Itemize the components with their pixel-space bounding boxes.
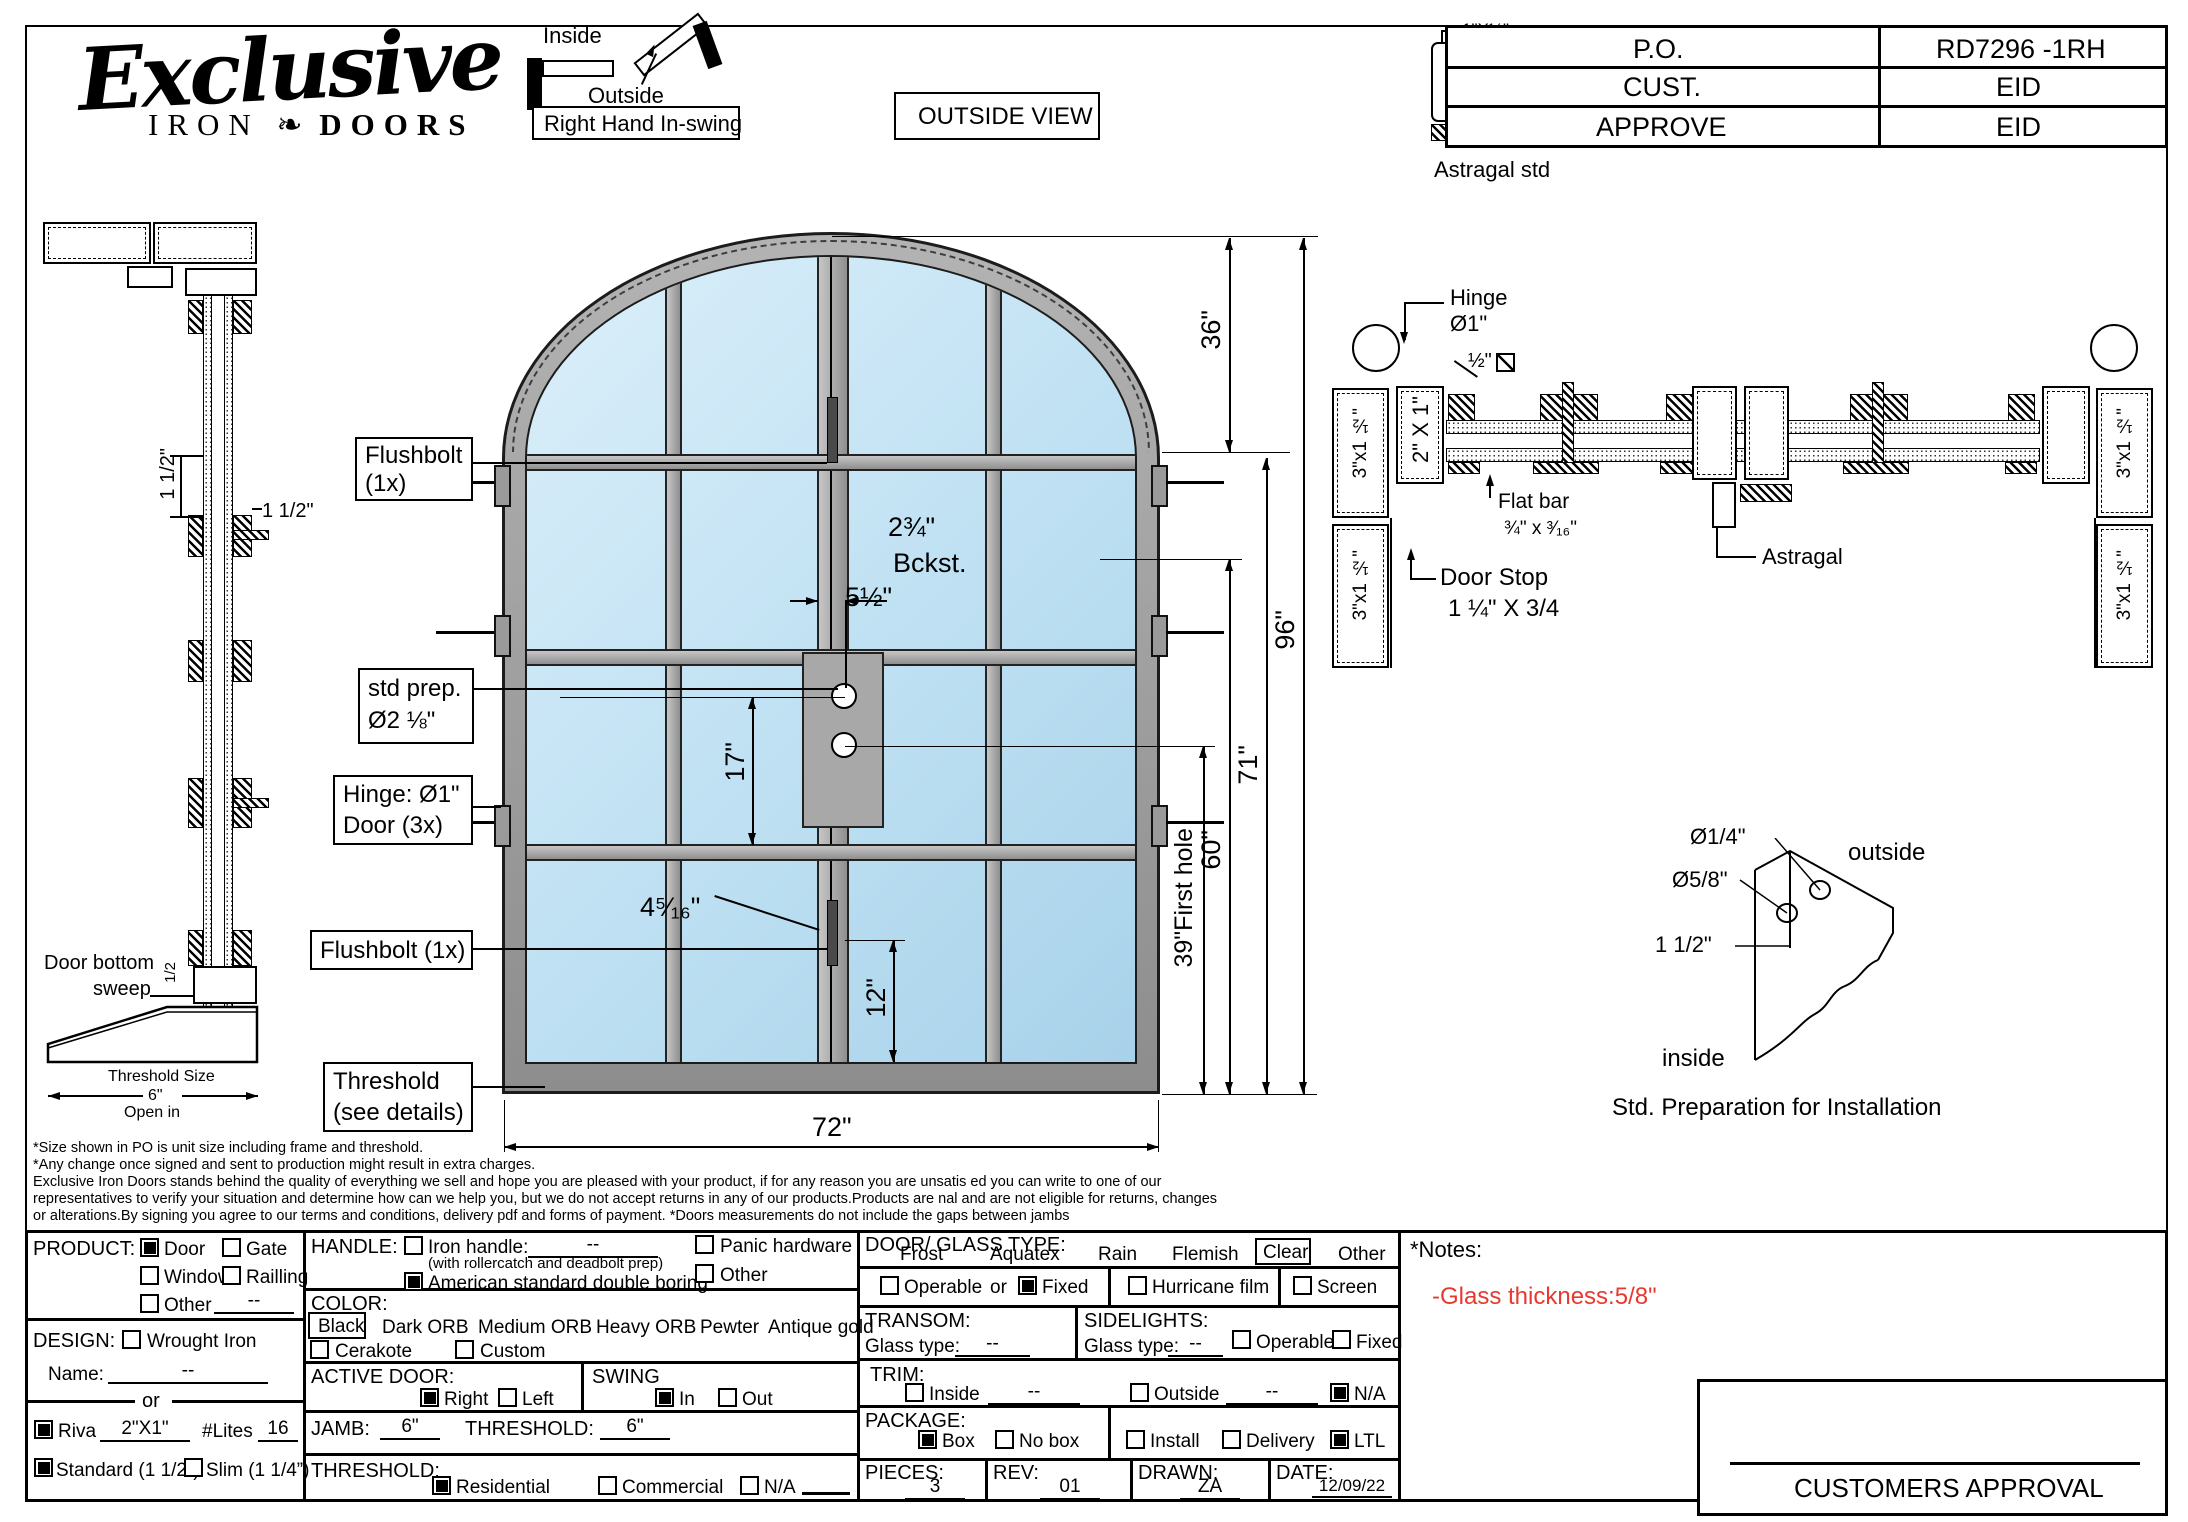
dim-72-line bbox=[504, 1146, 1159, 1148]
trim-outside-checkbox[interactable] bbox=[1130, 1383, 1149, 1402]
sidelights-fixed-label: Fixed bbox=[1356, 1332, 1402, 1353]
cust-label: CUST. bbox=[1623, 72, 1701, 102]
design-standard-checkbox[interactable] bbox=[34, 1458, 53, 1477]
color-custom-checkbox[interactable] bbox=[455, 1340, 474, 1359]
dim-firsthole-arrow-b bbox=[1199, 1082, 1207, 1094]
dim-12-arrow-top bbox=[889, 940, 897, 952]
form-c3-vline-1 bbox=[1108, 1266, 1111, 1305]
install-offset: 1 1/2" bbox=[1655, 933, 1712, 958]
sweep-half-dim: 1/2 bbox=[163, 962, 178, 983]
screw-right-1 bbox=[1166, 481, 1224, 484]
color-custom-label: Custom bbox=[480, 1341, 545, 1362]
slab-hatch-b1 bbox=[1448, 462, 1480, 474]
threshold-na-label: N/A bbox=[764, 1477, 796, 1498]
slab-hatch-t5 bbox=[2008, 394, 2035, 421]
dim-96-line bbox=[1303, 238, 1305, 1094]
jamb-strip-left-rail bbox=[203, 295, 212, 1045]
jamb-hatch-5L bbox=[188, 930, 203, 966]
logo-sub: IRON ❧ DOORS bbox=[148, 108, 475, 143]
ext-hinge-mid bbox=[1100, 559, 1242, 560]
swing-label: SWING bbox=[592, 1366, 660, 1388]
form-c3-vline-7 bbox=[1268, 1458, 1271, 1502]
screw-right-3 bbox=[1166, 821, 1224, 824]
handle-iron-checkbox[interactable] bbox=[404, 1236, 423, 1255]
dim-72-arrow-r bbox=[1147, 1143, 1159, 1151]
package-ltl-checkbox[interactable] bbox=[1330, 1430, 1349, 1449]
dim-72: 72" bbox=[806, 1112, 858, 1142]
hinge-right-1 bbox=[1151, 465, 1168, 507]
jamb-strip-right-rail bbox=[224, 295, 233, 1045]
dim-backset-ext bbox=[845, 600, 847, 688]
form-vline-3 bbox=[1398, 1230, 1401, 1502]
sidelights-fixed-checkbox[interactable] bbox=[1332, 1330, 1351, 1349]
disclaimer-line-5: or alterations.By signing you agree to o… bbox=[33, 1208, 1070, 1224]
dim-71-line bbox=[1266, 458, 1268, 1094]
active-right-label: Right bbox=[444, 1389, 488, 1410]
glass-frost-label[interactable]: Frost bbox=[900, 1244, 943, 1265]
cust-value: EID bbox=[1996, 72, 2041, 102]
sweep-label-1: Door bottom bbox=[44, 952, 154, 974]
astragal-plan-label: Astragal bbox=[1762, 545, 1843, 570]
glass-screen-checkbox[interactable] bbox=[1293, 1276, 1312, 1295]
glass-screen-label: Screen bbox=[1317, 1277, 1377, 1298]
trim-inside-value[interactable]: -- bbox=[988, 1381, 1080, 1405]
package-box-checkbox[interactable] bbox=[918, 1430, 937, 1449]
swing-inside-label: Inside bbox=[543, 24, 602, 49]
sidelights-operable-checkbox[interactable] bbox=[1232, 1330, 1251, 1349]
form-or-line-l bbox=[25, 1400, 135, 1403]
head-wall-line-left bbox=[1390, 518, 1392, 668]
package-delivery-label: Delivery bbox=[1246, 1431, 1315, 1452]
date-value[interactable]: 12/09/22 bbox=[1312, 1476, 1392, 1498]
product-window-checkbox[interactable] bbox=[140, 1266, 159, 1285]
leader-hinge bbox=[473, 806, 501, 808]
jamb-hatch-2L bbox=[188, 515, 203, 557]
jamb-hatch-4L bbox=[188, 778, 203, 828]
threshold-open-in: Open in bbox=[124, 1104, 180, 1122]
glass-fixed-checkbox[interactable] bbox=[1018, 1276, 1037, 1295]
disclaimer-line-1: *Size shown in PO is unit size including… bbox=[33, 1140, 423, 1156]
callout-hinge: Hinge: Ø1" Door (3x) bbox=[333, 775, 473, 845]
hinge-right-3 bbox=[1151, 805, 1168, 847]
dim-72-arrow-l bbox=[504, 1143, 516, 1151]
threshold-dim-arrow-r bbox=[246, 1092, 258, 1100]
title-block-row1-divider bbox=[1448, 66, 2165, 69]
drawn-value[interactable]: ZA bbox=[1180, 1476, 1240, 1500]
dim-36-arrow-b bbox=[1225, 440, 1233, 452]
glass-other-label[interactable]: Other bbox=[1338, 1244, 1386, 1265]
flatbar-leader bbox=[1489, 480, 1491, 498]
product-other-label: Other bbox=[164, 1295, 212, 1316]
color-black-label: Black bbox=[318, 1316, 364, 1337]
head-jamb-size-bottom: 3"x1 ½" bbox=[1351, 550, 1370, 620]
jamb-hatch-1R bbox=[233, 300, 252, 334]
head-hinge-leader-h bbox=[1404, 302, 1444, 304]
form-c3-hline-4 bbox=[857, 1405, 1398, 1408]
dim-12-tick bbox=[845, 940, 905, 941]
screw-left-2 bbox=[436, 631, 494, 634]
form-vline-2 bbox=[857, 1230, 860, 1502]
threshold-size-value: 6" bbox=[148, 1087, 163, 1105]
slab-muntin-2 bbox=[1872, 382, 1884, 466]
head-tube-right-dash bbox=[2047, 391, 2085, 479]
product-door-checkbox[interactable] bbox=[140, 1238, 159, 1257]
rev-label: REV: bbox=[993, 1462, 1039, 1484]
swing-in-checkbox[interactable] bbox=[655, 1388, 674, 1407]
transom-glasstype-label: Glass type: bbox=[865, 1336, 960, 1357]
head-jamb-box-top: 3"x1 ½" bbox=[1332, 388, 1389, 518]
design-riva-checkbox[interactable] bbox=[34, 1420, 53, 1439]
swing-in-label: In bbox=[679, 1389, 695, 1410]
meeting-doorstop bbox=[1712, 482, 1736, 528]
install-caption: Std. Preparation for Installation bbox=[1612, 1095, 1942, 1122]
leader-flushbolt-bottom bbox=[473, 948, 827, 950]
ext-bottom bbox=[1162, 1094, 1317, 1095]
form-c2-vline-swing bbox=[581, 1361, 584, 1410]
color-darkorb-label[interactable]: Dark ORB bbox=[382, 1317, 469, 1338]
jamb-dim-tick1 bbox=[170, 455, 204, 457]
callout-hinge-l2: Door (3x) bbox=[343, 813, 443, 840]
color-black-box[interactable]: Black bbox=[308, 1312, 366, 1339]
swing-type-box: Right Hand In-swing bbox=[532, 106, 740, 140]
jamb-head-box-1-dash bbox=[48, 227, 146, 259]
product-gate-checkbox[interactable] bbox=[222, 1238, 241, 1257]
threshold-residential-label: Residential bbox=[456, 1477, 550, 1498]
rev-value[interactable]: 01 bbox=[1040, 1476, 1100, 1500]
install-detail-sketch bbox=[1735, 838, 1915, 1073]
handle-panic-label: Panic hardware bbox=[720, 1236, 852, 1257]
handle-other-checkbox[interactable] bbox=[695, 1264, 714, 1283]
view-label-box: OUTSIDE VIEW bbox=[894, 92, 1100, 140]
handle-iron-note: (with rollercatch and deadbolt prep) bbox=[428, 1256, 663, 1273]
closed-door-bar bbox=[542, 60, 614, 77]
jamb-hatch-3L bbox=[188, 640, 203, 682]
dim-71-arrow-b bbox=[1262, 1082, 1270, 1094]
threshold-dim-arrow-l bbox=[48, 1092, 60, 1100]
jamb-value[interactable]: 6" bbox=[380, 1416, 440, 1440]
active-left-label: Left bbox=[522, 1389, 554, 1410]
threshold-residential-checkbox[interactable] bbox=[432, 1476, 451, 1495]
jamb-hatch-3R bbox=[233, 640, 252, 682]
design-wrought-label: Wrought Iron bbox=[147, 1331, 256, 1352]
callout-threshold-l1: Threshold bbox=[333, 1069, 440, 1096]
form-c3-vline-5 bbox=[985, 1458, 988, 1502]
glass-clear-box[interactable]: Clear bbox=[1255, 1238, 1311, 1265]
dim-36: 36" bbox=[1198, 310, 1225, 350]
form-c3-vline-3 bbox=[1075, 1305, 1078, 1358]
astragal-caption: Astragal std bbox=[1434, 158, 1550, 183]
glass-or-label: or bbox=[990, 1277, 1007, 1298]
product-railing-label: Railling bbox=[246, 1267, 308, 1288]
jamb-hatch-5R bbox=[233, 930, 252, 966]
signature-line[interactable] bbox=[1730, 1462, 2140, 1465]
product-label: PRODUCT: bbox=[33, 1238, 135, 1260]
color-heavyorb-label[interactable]: Heavy ORB bbox=[596, 1317, 696, 1338]
slab-hatch-t1 bbox=[1448, 394, 1475, 421]
leader-stdprep bbox=[474, 688, 838, 690]
design-lites-label: #Lites bbox=[202, 1421, 253, 1442]
callout-stdprep-l2: Ø2 ⅛" bbox=[368, 708, 435, 735]
head-hinge-label-2: Ø1" bbox=[1450, 312, 1487, 337]
install-outside: outside bbox=[1848, 840, 1925, 867]
head-tube-right bbox=[2042, 386, 2090, 484]
form-c2-hline-4 bbox=[303, 1453, 857, 1456]
dim-firsthole-line bbox=[1203, 746, 1205, 1094]
trim-outside-value[interactable]: -- bbox=[1226, 1381, 1318, 1405]
slab-hatch-b5 bbox=[2005, 462, 2037, 474]
trim-na-checkbox[interactable] bbox=[1330, 1383, 1349, 1402]
head-jamb-box-top-right: 3"x1 ½" bbox=[2096, 388, 2153, 518]
package-box-label: Box bbox=[942, 1431, 975, 1452]
swing-out-label: Out bbox=[742, 1389, 773, 1410]
hinge-left-3 bbox=[494, 805, 511, 847]
active-right-checkbox[interactable] bbox=[420, 1388, 439, 1407]
callout-stdprep: std prep. Ø2 ⅛" bbox=[358, 668, 474, 744]
jamb-hatch-2bar bbox=[233, 530, 269, 540]
swing-outside-label: Outside bbox=[588, 84, 664, 109]
title-block-col-divider bbox=[1878, 28, 1881, 145]
transom-glasstype-value[interactable]: -- bbox=[955, 1333, 1030, 1357]
jamb-head-box-2 bbox=[153, 222, 257, 264]
threshold-label: THRESHOLD: bbox=[311, 1460, 440, 1482]
slab-hatch-b4 bbox=[1843, 462, 1909, 474]
jamb-dim-tick3 bbox=[252, 508, 262, 510]
doorstop-leader-h bbox=[1410, 578, 1436, 580]
flushbolt-rod-bottom bbox=[827, 900, 838, 966]
head-tube-size: 2" X 1" bbox=[1410, 396, 1432, 463]
head-jamb-box-bottom-right: 3"x1 ½" bbox=[2096, 524, 2153, 668]
handle-american-checkbox[interactable] bbox=[404, 1272, 423, 1291]
meeting-astragal-bar bbox=[1740, 484, 1792, 502]
jamb-threshold-value[interactable]: 6" bbox=[600, 1416, 670, 1440]
glass-hurricane-label: Hurricane film bbox=[1152, 1277, 1269, 1298]
transom-label: TRANSOM: bbox=[865, 1310, 971, 1332]
rail-lower bbox=[527, 844, 1135, 861]
color-mediumorb-label[interactable]: Medium ORB bbox=[478, 1317, 592, 1338]
jamb-threshold-label: THRESHOLD: bbox=[465, 1418, 594, 1440]
glass-operable-label: Operable bbox=[904, 1277, 982, 1298]
active-door-label: ACTIVE DOOR: bbox=[311, 1366, 454, 1388]
jamb-head-box-4 bbox=[185, 268, 257, 296]
slab-muntin-1 bbox=[1562, 382, 1574, 466]
head-tube-left: 2" X 1" bbox=[1396, 386, 1444, 484]
callout-flushbolt-bottom-l1: Flushbolt (1x) bbox=[320, 938, 465, 965]
threshold-wedge bbox=[45, 1003, 261, 1065]
doorstop-label-2: 1 ¼" X 3/4 bbox=[1448, 596, 1559, 623]
head-hinge-label-1: Hinge bbox=[1450, 286, 1507, 311]
slab-hatch-t3 bbox=[1666, 394, 1693, 421]
package-nobox-checkbox[interactable] bbox=[995, 1430, 1014, 1449]
threshold-na-checkbox[interactable] bbox=[740, 1476, 759, 1495]
jamb-dim-line bbox=[180, 455, 182, 517]
glass-rain-label[interactable]: Rain bbox=[1098, 1244, 1137, 1265]
head-hinge-arrow bbox=[1400, 332, 1408, 344]
install-inside: inside bbox=[1662, 1046, 1725, 1073]
notes-glass-thickness: -Glass thickness:5/8" bbox=[1432, 1284, 1657, 1311]
head-wall-line-right bbox=[2094, 518, 2096, 668]
threshold-commercial-checkbox[interactable] bbox=[598, 1476, 617, 1495]
approve-label: APPROVE bbox=[1596, 112, 1727, 142]
hinge-left-2 bbox=[494, 615, 511, 657]
form-c3-hline-3 bbox=[857, 1358, 1398, 1361]
callout-stdprep-l1: std prep. bbox=[368, 676, 461, 703]
dim-4-5-16: 4⁵⁄₁₆" bbox=[640, 892, 700, 922]
dim-backset-label: Bckst. bbox=[893, 548, 967, 578]
package-delivery-checkbox[interactable] bbox=[1222, 1430, 1241, 1449]
form-c3-vline-2 bbox=[1278, 1266, 1281, 1305]
swing-type-label: Right Hand In-swing bbox=[544, 112, 742, 137]
deadbolt-hole bbox=[831, 732, 857, 758]
jamb-head-box-3 bbox=[127, 266, 173, 288]
glass-operable-checkbox[interactable] bbox=[880, 1276, 899, 1295]
dim-12: 12" bbox=[863, 978, 890, 1018]
hinge-right-2 bbox=[1151, 615, 1168, 657]
threshold-na-blank bbox=[802, 1492, 850, 1495]
head-jamb-size-bottom-r: 3"x1 ½" bbox=[2115, 550, 2134, 620]
product-other-checkbox[interactable] bbox=[140, 1294, 159, 1313]
meeting-tube-right-dash bbox=[1749, 391, 1784, 475]
doorstop-leader-v bbox=[1410, 554, 1412, 578]
callout-threshold: Threshold (see details) bbox=[323, 1062, 473, 1132]
head-hinge-circle-right bbox=[2090, 324, 2138, 372]
jamb-head-box-1 bbox=[43, 222, 151, 264]
flushbolt-rod-top bbox=[827, 397, 838, 463]
form-or-line-r bbox=[172, 1400, 303, 1403]
product-railing-checkbox[interactable] bbox=[222, 1266, 241, 1285]
logo-iron: IRON bbox=[148, 107, 260, 142]
design-name-label: Name: bbox=[48, 1364, 104, 1385]
glass-aquatex-label[interactable]: Aquatex bbox=[990, 1244, 1060, 1265]
active-left-checkbox[interactable] bbox=[498, 1388, 517, 1407]
package-install-label: Install bbox=[1150, 1431, 1200, 1452]
dim-12-arrow-bot bbox=[889, 1050, 897, 1062]
dim-17-line bbox=[752, 697, 754, 845]
head-half-square-label: ½" bbox=[1468, 350, 1492, 372]
callout-hinge-l1: Hinge: Ø1" bbox=[343, 782, 460, 809]
flatbar-label-2: ¾" x ³⁄₁₆" bbox=[1504, 518, 1577, 539]
door-bottom-block bbox=[193, 966, 257, 1004]
dim-firsthole-arrow-t bbox=[1199, 746, 1207, 758]
sidelights-glasstype-label: Glass type: bbox=[1084, 1336, 1179, 1357]
trim-outside-label: Outside bbox=[1154, 1384, 1219, 1405]
form-c3-vline-4 bbox=[1108, 1405, 1111, 1458]
glass-fixed-label: Fixed bbox=[1042, 1277, 1088, 1298]
dim-firsthole: 39"First hole bbox=[1172, 828, 1197, 968]
design-or-label: or bbox=[142, 1390, 160, 1412]
logo-doors: DOORS bbox=[319, 107, 474, 142]
meeting-tube-left bbox=[1692, 386, 1737, 480]
design-lites-value[interactable]: 16 bbox=[258, 1418, 298, 1442]
ext-hole1 bbox=[560, 697, 845, 698]
callout-flushbolt-top-l2: (1x) bbox=[365, 471, 406, 498]
product-gate-label: Gate bbox=[246, 1239, 287, 1260]
dim-backset: 2¾" bbox=[888, 512, 935, 542]
handle-american-label: American standard double boring bbox=[428, 1273, 708, 1294]
color-antique-label[interactable]: Antique gold bbox=[768, 1317, 874, 1338]
half-square-icon bbox=[1496, 353, 1515, 372]
package-label: PACKAGE: bbox=[865, 1410, 966, 1432]
screw-right-2 bbox=[1166, 631, 1224, 634]
jamb-dim: 1 1/2" bbox=[262, 500, 314, 522]
meeting-tube-right bbox=[1744, 386, 1789, 480]
callout-flushbolt-top: Flushbolt (1x) bbox=[355, 437, 473, 501]
meeting-tube-left-dash bbox=[1697, 391, 1732, 475]
sidelights-glasstype-value[interactable]: -- bbox=[1168, 1333, 1223, 1357]
package-nobox-label: No box bbox=[1019, 1431, 1079, 1452]
drawing-sheet: Exclusive IRON ❧ DOORS Inside Outside Ri… bbox=[0, 0, 2188, 1522]
form-c3-hline-2 bbox=[857, 1305, 1398, 1308]
closed-door-jamb bbox=[527, 58, 542, 110]
glass-clear-label: Clear bbox=[1263, 1242, 1308, 1263]
design-slim-checkbox[interactable] bbox=[184, 1458, 203, 1477]
sweep-label-2: sweep bbox=[93, 978, 151, 1000]
customers-approval-box: CUSTOMERS APPROVAL bbox=[1697, 1379, 2168, 1516]
po-label: P.O. bbox=[1633, 34, 1684, 64]
dim-17-arrow-top bbox=[748, 697, 756, 709]
trim-inside-checkbox[interactable] bbox=[905, 1383, 924, 1402]
form-c3-hline-1 bbox=[857, 1266, 1398, 1269]
install-hole-small: Ø1/4" bbox=[1690, 825, 1746, 850]
flatbar-label-1: Flat bar bbox=[1498, 490, 1569, 514]
ext-springline bbox=[1162, 452, 1290, 453]
glass-hurricane-checkbox[interactable] bbox=[1128, 1276, 1147, 1295]
pieces-value[interactable]: 3 bbox=[905, 1476, 965, 1500]
trim-inside-label: Inside bbox=[929, 1384, 980, 1405]
design-riva-value[interactable]: 2"X1" bbox=[100, 1418, 190, 1442]
astragal-leader-h bbox=[1716, 556, 1756, 558]
form-c1-hline-1 bbox=[25, 1318, 303, 1321]
dim-36-arrow-t bbox=[1225, 238, 1233, 250]
color-pewter-label[interactable]: Pewter bbox=[700, 1317, 759, 1338]
dim-12-line bbox=[893, 940, 895, 1062]
jamb-head-box-2-dash bbox=[158, 227, 252, 259]
design-riva-label: Riva bbox=[58, 1421, 96, 1442]
swing-out-checkbox[interactable] bbox=[718, 1388, 737, 1407]
jamb-label: JAMB: bbox=[311, 1418, 370, 1440]
product-other-value[interactable]: -- bbox=[214, 1290, 294, 1314]
leader-threshold bbox=[473, 1086, 545, 1088]
install-hole-large: Ø5/8" bbox=[1672, 868, 1728, 893]
handle-label: HANDLE: bbox=[311, 1236, 398, 1258]
slab-bottom-skin bbox=[1446, 448, 2040, 462]
astragal-leader-1 bbox=[1441, 30, 1443, 44]
package-ltl-label: LTL bbox=[1354, 1431, 1385, 1452]
package-install-checkbox[interactable] bbox=[1126, 1430, 1145, 1449]
design-wrought-checkbox[interactable] bbox=[122, 1330, 141, 1349]
handle-panic-checkbox[interactable] bbox=[695, 1235, 714, 1254]
callout-flushbolt-bottom: Flushbolt (1x) bbox=[310, 930, 473, 970]
ext-top bbox=[832, 236, 1318, 237]
fleur-ornament-icon: ❧ bbox=[277, 107, 303, 142]
doorstop-label-1: Door Stop bbox=[1440, 565, 1548, 592]
color-cerakote-label: Cerakote bbox=[335, 1341, 412, 1362]
sidelights-operable-label: Operable bbox=[1256, 1332, 1334, 1353]
threshold-dim-line-l bbox=[48, 1095, 143, 1097]
handle-hole bbox=[831, 683, 857, 709]
glass-flemish-label[interactable]: Flemish bbox=[1172, 1244, 1239, 1265]
dim-71: 71" bbox=[1235, 745, 1262, 785]
threshold-commercial-label: Commercial bbox=[622, 1477, 723, 1498]
color-cerakote-checkbox[interactable] bbox=[310, 1340, 329, 1359]
dim-17: 17" bbox=[722, 742, 749, 782]
dim-96-arrow-b bbox=[1299, 1082, 1307, 1094]
design-name-value[interactable]: -- bbox=[108, 1360, 268, 1384]
dim-backset-arrow2 bbox=[806, 597, 818, 605]
design-standard-label: Standard (1 1/2”) bbox=[56, 1460, 200, 1481]
slab-hatch-b3 bbox=[1660, 462, 1694, 474]
disclaimer-line-4: representatives to verify your situation… bbox=[33, 1191, 1217, 1207]
notes-label: *Notes: bbox=[1410, 1238, 1482, 1263]
